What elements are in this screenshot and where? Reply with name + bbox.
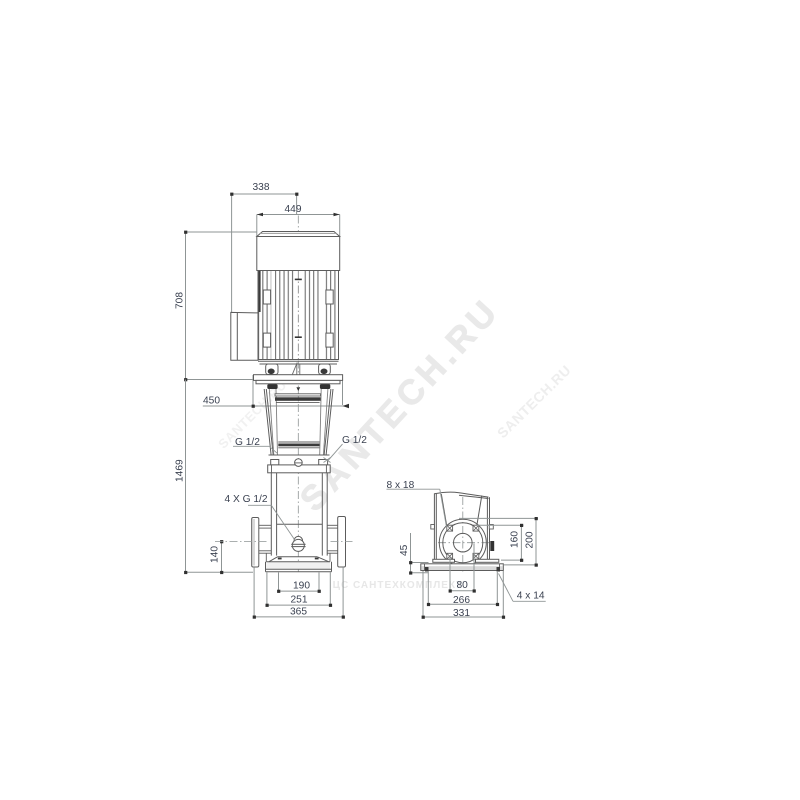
svg-text:140: 140 bbox=[210, 546, 221, 563]
svg-text:45: 45 bbox=[399, 544, 410, 556]
svg-text:450: 450 bbox=[203, 396, 220, 407]
svg-text:4 x 14: 4 x 14 bbox=[517, 591, 545, 602]
svg-text:G 1/2: G 1/2 bbox=[342, 435, 367, 446]
svg-text:251: 251 bbox=[291, 595, 308, 606]
svg-text:160: 160 bbox=[510, 531, 521, 548]
svg-text:SANTECH.RU: SANTECH.RU bbox=[494, 362, 574, 441]
svg-text:80: 80 bbox=[457, 580, 469, 591]
svg-text:338: 338 bbox=[253, 182, 270, 193]
svg-text:190: 190 bbox=[293, 581, 310, 592]
svg-text:708: 708 bbox=[175, 292, 186, 309]
svg-text:1469: 1469 bbox=[175, 459, 186, 482]
svg-text:200: 200 bbox=[525, 531, 536, 548]
svg-text:4 X G 1/2: 4 X G 1/2 bbox=[225, 494, 268, 505]
svg-text:365: 365 bbox=[290, 607, 307, 618]
svg-text:449: 449 bbox=[285, 204, 302, 215]
svg-text:ЦС САНТЕХКОМПЛЕКТ: ЦС САНТЕХКОМПЛЕКТ bbox=[333, 580, 464, 591]
